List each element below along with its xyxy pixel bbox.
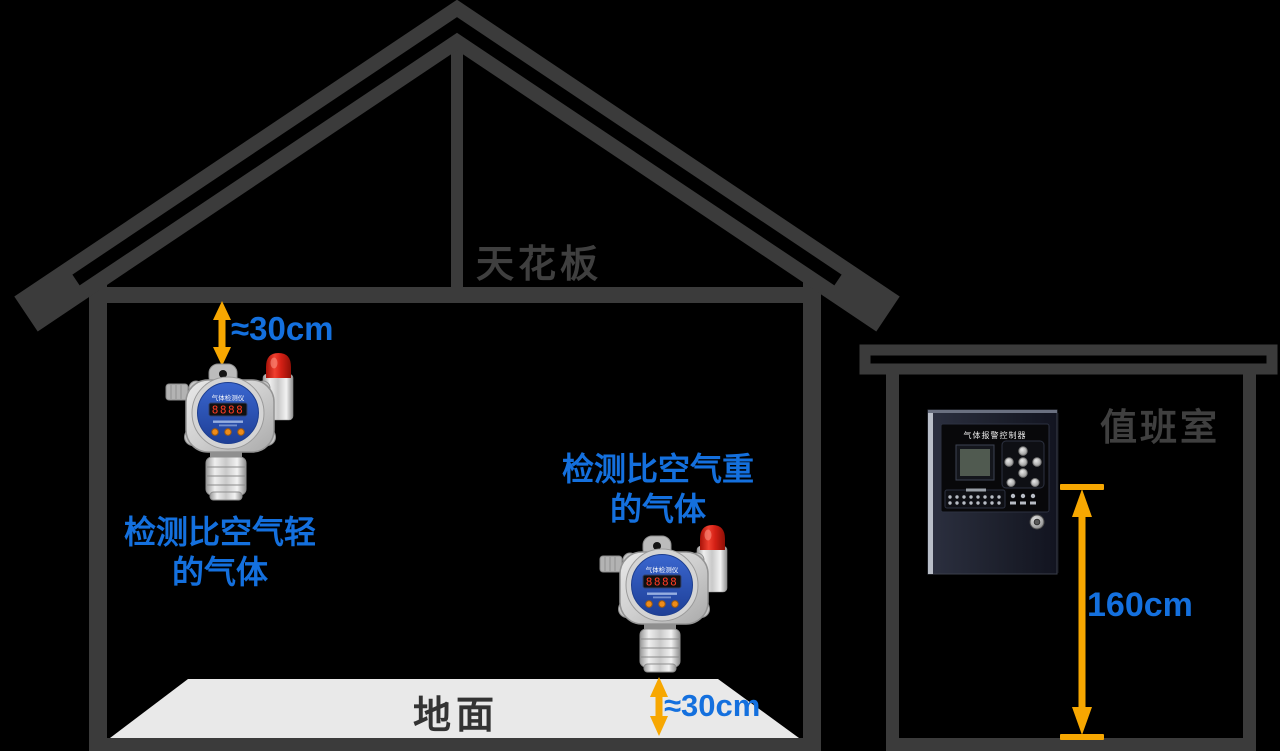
installation-diagram: 气体检测仪 8888 [0,0,1280,751]
heavy-gas-label-line2: 的气体 [546,489,770,529]
light-gas-label: 检测比空气轻 的气体 [108,512,332,592]
right-wall [803,276,821,751]
top-clearance-label: ≈30cm [231,310,334,348]
keypad-left-button [1005,458,1013,466]
controller-title: 气体报警控制器 [964,430,1027,440]
duty-room-roof [865,350,1272,369]
keypad-ok-button [1019,458,1027,466]
heavy-gas-label: 检测比空气重 的气体 [546,449,770,529]
ceiling-beam [89,287,821,303]
heavy-gas-label-line1: 检测比空气重 [546,449,770,489]
left-wall [89,276,107,751]
floor-label: 地面 [413,684,499,739]
gas-detector-floor [600,525,727,672]
controller-height-label: 160cm [1087,586,1193,625]
keypad-down-button [1019,469,1027,477]
gas-detector-ceiling [166,353,293,500]
bottom-clearance-label: ≈30cm [664,688,760,724]
duty-room-label: 值班室 [1100,397,1220,451]
alarm-controller: 气体报警控制器 [928,410,1059,574]
light-gas-label-line2: 的气体 [108,552,332,592]
keypad-right-button [1033,458,1041,466]
house-baseline [89,738,821,751]
duty-room-right-wall [1243,374,1256,751]
keypad-fn-button [1007,479,1015,487]
keypad-up-button [1019,447,1027,455]
ceiling-label: 天花板 [476,233,602,288]
king-post [451,38,463,290]
light-gas-label-line1: 检测比空气轻 [108,512,332,552]
keypad-fn-button [1031,479,1039,487]
duty-room-left-wall [886,374,899,751]
channel-led-block [945,490,1005,508]
top-clearance-arrow [213,301,231,366]
diagram-canvas: 气体检测仪 8888 [0,0,1280,751]
